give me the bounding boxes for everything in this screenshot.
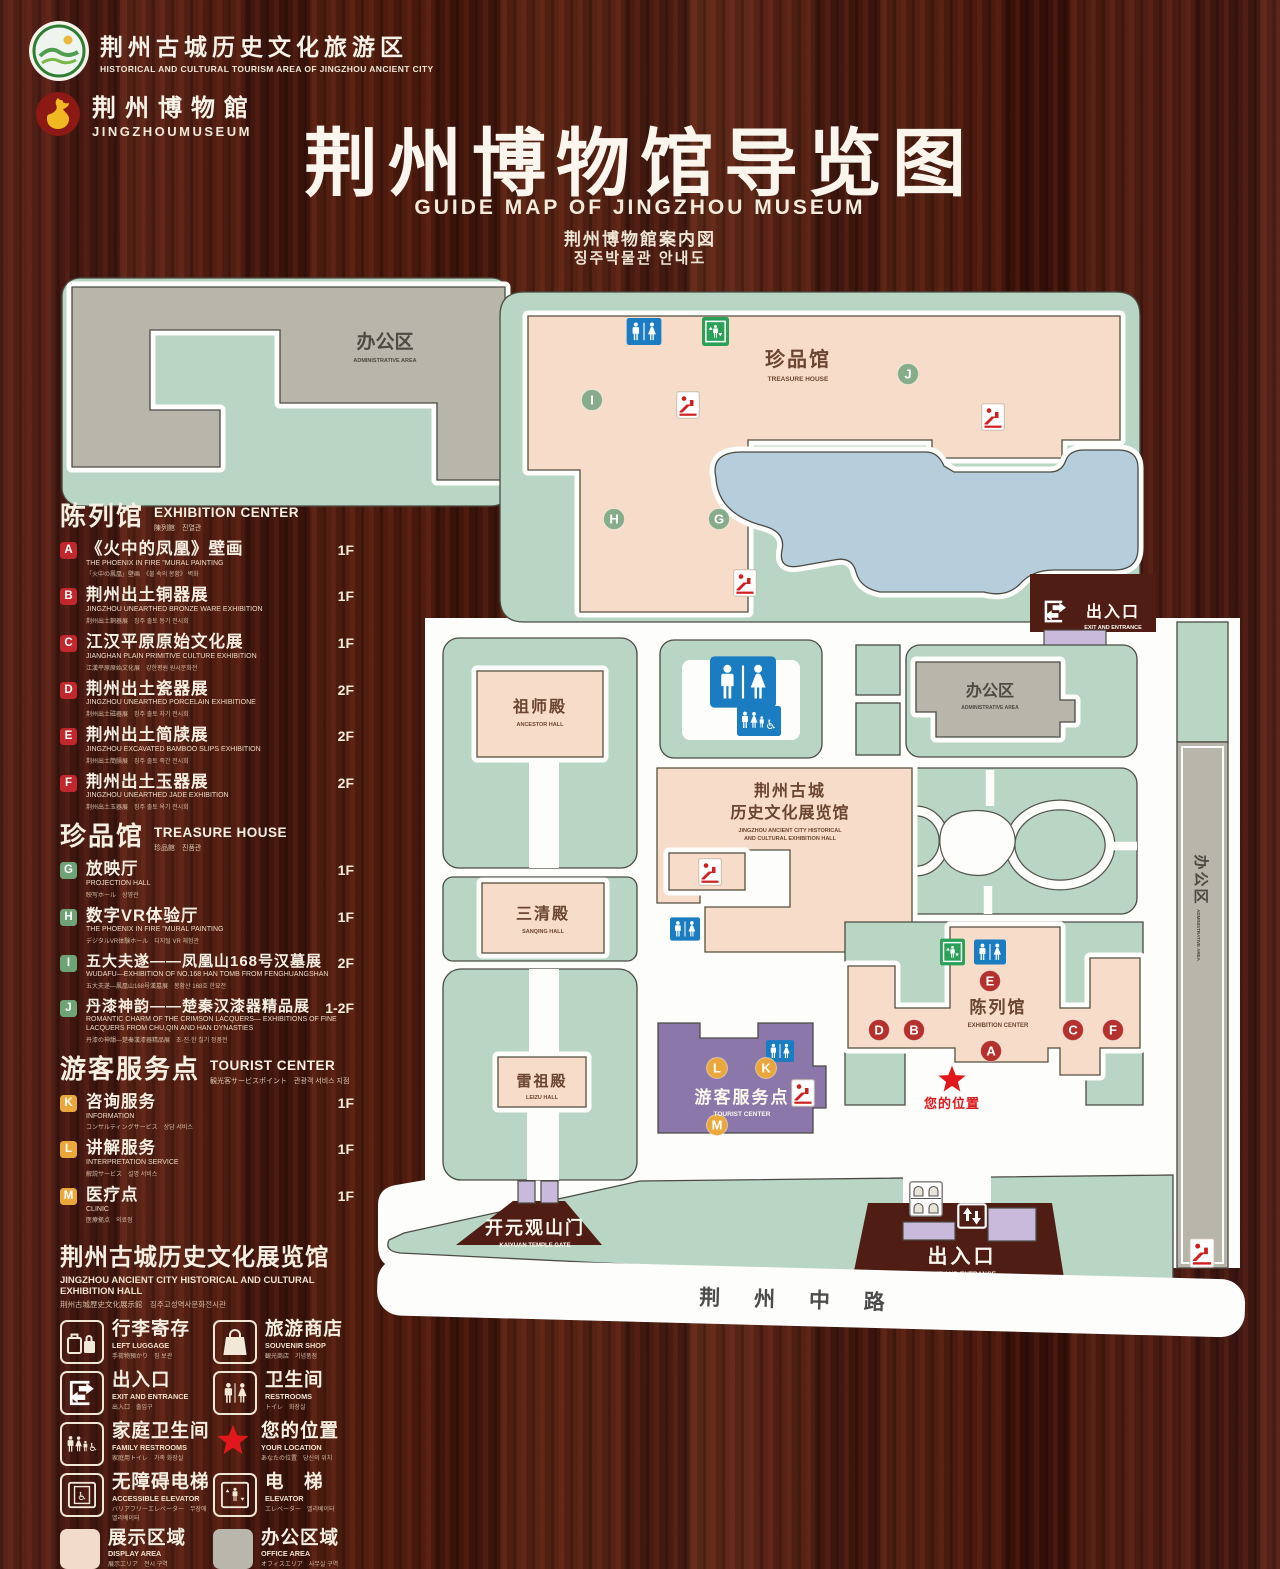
svg-text:办公区: 办公区 (356, 330, 413, 353)
tourism-area-logo-icon (28, 20, 90, 82)
facility-office-area: 办公区域 OFFICE AREA オフィスエリア 사무실 구역 (213, 1529, 356, 1569)
central-restroom-block (660, 640, 822, 758)
tourism-area-name: 荆州古城历史文化旅游区 (100, 28, 434, 62)
tourism-area-name-en: HISTORICAL AND CULTURAL TOURISM AREA OF … (100, 64, 434, 74)
svg-text:出入口: 出入口 (928, 1245, 997, 1268)
admin-area-right-strip: 办公区 ADMINISTRATIVE AREA (1177, 622, 1228, 1268)
svg-text:ANCESTOR HALL: ANCESTOR HALL (517, 722, 565, 728)
left-luggage-icon (60, 1320, 104, 1364)
svg-text:M: M (712, 1118, 723, 1133)
escalator-icon (734, 570, 757, 597)
tourism-area-logo-row: 荆州古城历史文化旅游区 HISTORICAL AND CULTURAL TOUR… (28, 20, 434, 82)
page-title-en: GUIDE MAP OF JINGZHOU MUSEUM (0, 196, 1280, 220)
escalator-icon (677, 392, 700, 419)
svg-text:JINGZHOU ANCIENT CITY HISTORIC: JINGZHOU ANCIENT CITY HISTORICAL (738, 828, 842, 834)
legend-item-I: I 五大夫遂——凤凰山168号汉墓展 WUDAFU—EXHIBITION OF … (60, 954, 356, 990)
svg-text:陈列馆: 陈列馆 (970, 997, 1027, 1017)
legend-item-C: C 江汉平原原始文化展 JIANGHAN PLAIN PRIMITIVE CUL… (60, 634, 356, 672)
svg-text:F: F (1109, 1023, 1117, 1038)
svg-text:L: L (713, 1061, 721, 1076)
restrooms-icon (213, 1371, 257, 1415)
marker-B: B (904, 1020, 925, 1041)
legend-item-J: J 丹漆神韵——楚秦汉漆器精品展 ROMANTIC CHARM OF THE C… (60, 999, 356, 1044)
admin-area-top-left: 办公区 ADMINISTRATIVE AREA (62, 278, 510, 506)
marker-L: L (707, 1058, 728, 1079)
svg-text:A: A (986, 1044, 996, 1059)
svg-text:B: B (909, 1023, 918, 1038)
entrance-gate-building (988, 1208, 1036, 1241)
leizu-hall-block: 雷祖殿 LEIZU HALL (443, 969, 637, 1180)
svg-text:您的位置: 您的位置 (924, 1096, 980, 1111)
svg-text:游客服务点: 游客服务点 (695, 1087, 790, 1107)
restroom-icon (627, 318, 662, 345)
family-restrooms-icon: ♿ (60, 1422, 104, 1466)
svg-text:C: C (1068, 1023, 1078, 1038)
svg-text:出入口: 出入口 (1086, 602, 1140, 621)
legend-section-treasure-house: 珍品馆 TREASURE HOUSE 珍品館 진품관 (60, 823, 356, 853)
badge-A: A (60, 542, 77, 559)
svg-text:J: J (904, 367, 911, 382)
svg-text:♿: ♿ (88, 1442, 98, 1454)
facility-left-luggage: 行李寄存 LEFT LUGGAGE 手荷物預かり 짐 보관 (60, 1320, 213, 1364)
historical-exhibition-hall-note: 荆州古城历史文化展览馆 JINGZHOU ANCIENT CITY HISTOR… (60, 1238, 356, 1310)
svg-text:三清殿: 三清殿 (516, 905, 570, 923)
marker-C: C (1063, 1020, 1084, 1041)
legend-item-H: H 数字VR体验厅 THE PHOENIX IN FIRE "MURAL PAI… (60, 908, 356, 946)
accessible-elevator-icon: ♿ (60, 1473, 104, 1517)
legend-item-B: B 荆州出土铜器展 JINGZHOU UNEARTHED BRONZE WARE… (60, 587, 356, 625)
svg-text:SANQING HALL: SANQING HALL (522, 929, 565, 935)
facility-family-restrooms: ♿ 家庭卫生间 FAMILY RESTROOMS 家庭用トイレ 가족 화장실 (60, 1422, 213, 1466)
svg-text:办公区: 办公区 (1192, 854, 1210, 905)
svg-text:LEIZU HALL: LEIZU HALL (526, 1095, 559, 1101)
treasure-house-block: 珍品馆 TREASURE HOUSE I J H G (500, 292, 1140, 622)
legend-item-D: D 荆州出土瓷器展 JINGZHOU UNEARTHED PORCELAIN E… (60, 681, 356, 719)
legend-item-M: M 医疗点 CLINIC 医療拠点 의료점 1F (60, 1187, 356, 1225)
elevator-icon (702, 317, 729, 346)
svg-text:办公区: 办公区 (966, 681, 1014, 700)
svg-text:ADMINISTRATIVE AREA: ADMINISTRATIVE AREA (353, 358, 416, 364)
restroom-icon (710, 656, 776, 707)
marker-E: E (980, 971, 1001, 992)
facility-legend: 行李寄存 LEFT LUGGAGE 手荷物預かり 짐 보관 旅游商店 SOUVE… (60, 1320, 356, 1569)
facility-restrooms: 卫生间 RESTROOMS トイレ 화장실 (213, 1371, 356, 1415)
svg-text:H: H (609, 512, 618, 527)
legend-item-G: G 放映厅 PROJECTION HALL 映写ホール 상영관 1F (60, 861, 356, 899)
marker-J: J (898, 364, 919, 385)
svg-text:开元观山门: 开元观山门 (485, 1217, 585, 1238)
facility-accessible-elevator: ♿ 无障碍电梯 ACCESSIBLE ELEVATOR バリアフリーエレベーター… (60, 1473, 213, 1522)
svg-text:E: E (986, 974, 995, 989)
svg-text:雷祖殿: 雷祖殿 (516, 1072, 567, 1090)
legend-item-K: K 咨询服务 INFORMATION コンサルティングサービス 상담 서비스 1… (60, 1094, 356, 1132)
restroom-icon (974, 940, 1006, 965)
svg-text:KAIYUAN TEMPLE GATE: KAIYUAN TEMPLE GATE (499, 1243, 570, 1249)
turnstile-icon (910, 1182, 942, 1216)
gate-pylon (541, 1181, 558, 1203)
escalator-icon (792, 1080, 815, 1107)
svg-text:EXHIBITION CENTER: EXHIBITION CENTER (968, 1023, 1029, 1029)
escalator-icon (982, 404, 1005, 431)
legend-section-tourist-center: 游客服务点 TOURIST CENTER 観光客サービスポイント 관광객 서비스… (60, 1056, 356, 1086)
sanqing-hall-block: 三清殿 SANQING HALL (443, 877, 637, 961)
page-title-kr: 징주박물관 안내도 (0, 247, 1280, 268)
svg-text:G: G (714, 512, 724, 527)
legend-section-exhibition-center: 陈列馆 EXHIBITION CENTER 陳列館 진열관 (60, 503, 356, 533)
display-area-swatch (60, 1529, 100, 1569)
ancestor-hall-block: 祖师殿 ANCESTOR HALL (443, 638, 637, 868)
svg-text:祖师殿: 祖师殿 (512, 697, 567, 716)
marker-A: A (981, 1041, 1002, 1062)
facility-display-area: 展示区域 DISPLAY AREA 展示エリア 전시 구역 (60, 1529, 213, 1569)
souvenir-shop-icon (213, 1320, 257, 1364)
facility-souvenir-shop: 旅游商店 SOUVENIR SHOP 観光商店 기념품점 (213, 1320, 356, 1364)
legend-item-E: E 荆州出土简牍展 JINGZHOU EXCAVATED BAMBOO SLIP… (60, 727, 356, 765)
legend-item-L: L 讲解服务 INTERPRETATION SERVICE 解説サービス 설명 … (60, 1140, 356, 1178)
elevator-icon (940, 939, 965, 966)
entrance-gate-building (903, 1222, 955, 1240)
svg-text:珍品馆: 珍品馆 (765, 347, 831, 371)
legend-item-A: A 《火中的凤凰》壁画 THE PHOENIX IN FIRE "MURAL P… (60, 541, 356, 579)
page-title: 荆州博物馆导览图 (0, 104, 1280, 211)
facility-elevator: 电 梯 ELEVATOR エレベーター 엘리베이터 (213, 1473, 356, 1522)
svg-text:ADMINISTRATIVE AREA: ADMINISTRATIVE AREA (961, 705, 1019, 711)
marker-I: I (582, 390, 603, 411)
office-area-swatch (213, 1529, 253, 1569)
tourist-center-block: L K M 游客服务点 TOURIST CENTER (658, 1023, 826, 1136)
marker-G: G (709, 509, 730, 530)
svg-text:荆州古城: 荆州古城 (754, 781, 826, 800)
escalator-icon (699, 859, 722, 886)
escalator-icon (1190, 1239, 1214, 1268)
svg-text:I: I (590, 393, 594, 408)
svg-text:D: D (874, 1023, 883, 1038)
section-title: 陈列馆 (60, 503, 144, 529)
family-restroom-icon (737, 706, 781, 736)
marker-D: D (869, 1020, 890, 1041)
marker-K: K (756, 1058, 777, 1079)
elevator-icon (213, 1473, 257, 1517)
gate-pylon (518, 1181, 535, 1203)
svg-text:AND CULTURAL EXHIBITION HALL: AND CULTURAL EXHIBITION HALL (744, 836, 837, 842)
svg-text:历史文化展览馆: 历史文化展览馆 (730, 803, 849, 822)
your-location-icon (213, 1422, 253, 1462)
svg-text:ADMINISTRATIVE AREA: ADMINISTRATIVE AREA (1196, 909, 1201, 962)
svg-text:♿: ♿ (77, 1492, 87, 1504)
marker-F: F (1103, 1020, 1124, 1041)
svg-text:K: K (761, 1061, 771, 1076)
legend-panel: 陈列馆 EXHIBITION CENTER 陳列館 진열관 A 《火中的凤凰》壁… (60, 503, 356, 1569)
restroom-icon (670, 917, 700, 940)
svg-text:TREASURE HOUSE: TREASURE HOUSE (768, 376, 829, 383)
svg-text:TOURIST CENTER: TOURIST CENTER (714, 1111, 771, 1118)
exit-entrance-icon (60, 1371, 104, 1415)
facility-exit-entrance: 出入口 EXIT AND ENTRANCE 出入口 출입구 (60, 1371, 213, 1415)
legend-item-F: F 荆州出土玉器展 JINGZHOU UNEARTHED JADE EXHIBI… (60, 774, 356, 812)
facility-your-location: 您的位置 YOUR LOCATION あなたの位置 당신의 위치 (213, 1422, 356, 1466)
marker-H: H (604, 509, 625, 530)
